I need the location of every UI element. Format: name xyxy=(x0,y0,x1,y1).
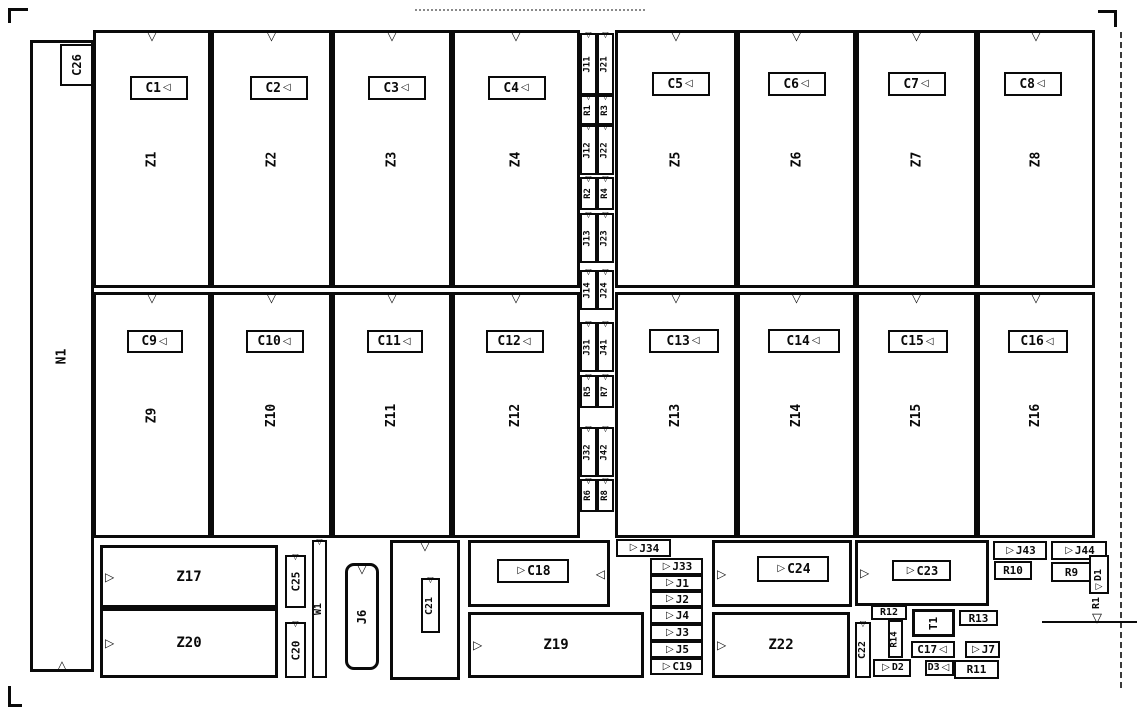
resistor-r14: R14 xyxy=(888,620,903,658)
edge-marker: ▽ xyxy=(1088,612,1106,626)
connector-j6: J6▽ xyxy=(345,563,379,670)
capacitor-c26: C26 xyxy=(60,44,93,86)
arrow-right-icon: ▷ xyxy=(517,566,525,576)
ic-z6-label: Z6 xyxy=(790,151,803,167)
arrow-left-icon: ◁ xyxy=(1037,79,1045,89)
jumper-j4-label: J4 xyxy=(676,610,689,621)
resistor-r3: R3▽ xyxy=(597,95,614,125)
pin1-notch-icon: ▽ xyxy=(511,292,520,304)
ic-z2-label: Z2 xyxy=(265,151,278,167)
jumper-j32: J32▽ xyxy=(580,427,597,477)
capacitor-c11-label: C11 xyxy=(377,335,400,348)
arrow-left-icon: ◁ xyxy=(921,79,929,89)
resistor-r9: R9 xyxy=(1051,562,1092,582)
jumper-j11-label: J11 xyxy=(584,56,593,72)
capacitor-c13-label: C13 xyxy=(666,335,689,348)
arrow-left-icon: ◁ xyxy=(523,337,531,347)
pin1-notch-icon: ▽ xyxy=(602,373,608,381)
resistor-r11: R11 xyxy=(954,660,999,679)
capacitor-c9-label: C9 xyxy=(141,335,157,348)
arrow-left-icon: ◁ xyxy=(939,645,947,655)
jumper-j31: J31▽ xyxy=(580,322,597,372)
arrow-left-icon: ◁ xyxy=(283,337,291,347)
resistor-r2: R2▽ xyxy=(580,177,597,210)
arrow-right-icon: ▷ xyxy=(663,662,671,672)
jumper-j4: ▷J4 xyxy=(650,607,703,624)
ic-z3: Z3▽ xyxy=(332,30,452,288)
capacitor-c4: C4◁ xyxy=(488,76,546,100)
capacitor-c26-label: C26 xyxy=(71,54,83,76)
ic-z6: Z6▽ xyxy=(737,30,856,288)
ic-z11-label: Z11 xyxy=(385,403,398,426)
pcb-assembly-diagram: N1△C26Z1▽Z2▽Z3▽Z4▽Z5▽Z6▽Z7▽Z8▽C1◁C2◁C3◁C… xyxy=(0,0,1137,720)
ic-z19: Z19▷ xyxy=(468,612,644,678)
capacitor-c10: C10◁ xyxy=(246,330,304,353)
resistor-r5-label: R5 xyxy=(584,386,593,397)
resistor-r4: R4▽ xyxy=(597,177,614,210)
jumper-j22-label: J22 xyxy=(601,142,610,158)
component-t1: T1 xyxy=(912,609,955,637)
jumper-j1: ▷J1 xyxy=(650,575,703,591)
jumper-j41: J41▽ xyxy=(597,322,614,372)
arrow-right-icon: ▷ xyxy=(907,566,915,576)
resistor-r11-label: R11 xyxy=(967,664,987,675)
component-n1: N1△ xyxy=(30,40,94,672)
capacitor-c8-label: C8 xyxy=(1019,78,1035,91)
capacitor-c25-label: C25 xyxy=(290,572,301,592)
resistor-r12: R12 xyxy=(871,605,907,620)
arrow-right-icon: ▷ xyxy=(666,628,674,638)
capacitor-c8: C8◁ xyxy=(1004,72,1062,96)
capacitor-c6: C6◁ xyxy=(768,72,826,96)
capacitor-c24-label: C24 xyxy=(787,563,810,576)
jumper-j2: ▷J2 xyxy=(650,591,703,607)
ic-z11: Z11▽ xyxy=(332,292,452,538)
capacitor-c19-label: C19 xyxy=(672,661,692,672)
jumper-j24-label: J24 xyxy=(601,282,610,298)
pin1-notch-icon: ▽ xyxy=(292,553,298,561)
jumper-j32-label: J32 xyxy=(584,444,593,460)
capacitor-c14: C14◁ xyxy=(768,329,840,353)
resistor-r9-label: R9 xyxy=(1065,567,1078,578)
arrow-left-icon: ◁ xyxy=(596,568,605,580)
jumper-j12-label: J12 xyxy=(584,142,593,158)
ic-z16-label: Z16 xyxy=(1029,403,1042,426)
pin1-notch-icon: ▽ xyxy=(912,30,921,42)
pin1-notch-icon: ▽ xyxy=(792,292,801,304)
resistor-r10-label: R10 xyxy=(1003,565,1023,576)
pin1-notch-icon: ▽ xyxy=(267,292,276,304)
capacitor-c20-label: C20 xyxy=(290,640,301,660)
arrow-right-icon: ▷ xyxy=(717,639,726,651)
pin1-notch-icon: ▽ xyxy=(602,477,608,485)
arrow-right-icon: ▷ xyxy=(666,594,674,604)
capacitor-c11: C11◁ xyxy=(367,330,423,353)
board-corner-mark-top-left xyxy=(8,8,28,23)
connector-j6-label: J6 xyxy=(356,609,368,623)
arrow-right-icon: ▷ xyxy=(666,578,674,588)
ic-z1: Z1▽ xyxy=(93,30,211,288)
capacitor-c13: C13◁ xyxy=(649,329,719,353)
ic-z8-label: Z8 xyxy=(1030,151,1043,167)
arrow-right-icon: ▷ xyxy=(1006,546,1014,556)
resistor-r13: R13 xyxy=(959,610,998,626)
capacitor-c18: ▷C18 xyxy=(497,559,569,583)
resistor-r8: R8▽ xyxy=(597,479,614,512)
arrow-right-icon: ▷ xyxy=(473,639,482,651)
pin1-notch-icon: ▽ xyxy=(602,31,608,39)
ic-z20: Z20▷ xyxy=(100,608,278,678)
ic-z12: Z12▽ xyxy=(452,292,580,538)
diode-d3: D3◁ xyxy=(925,660,954,676)
capacitor-c7: C7◁ xyxy=(888,72,946,96)
ic-z4: Z4▽ xyxy=(452,30,580,288)
pin1-notch-icon: ▽ xyxy=(420,540,429,552)
pin1-notch-icon: ▽ xyxy=(585,373,591,381)
jumper-j43-label: J43 xyxy=(1016,545,1036,556)
pin1-notch-icon: ▽ xyxy=(671,292,680,304)
capacitor-c16: C16◁ xyxy=(1008,330,1068,353)
pin1-notch-icon: ▽ xyxy=(585,175,591,183)
ic-z4-label: Z4 xyxy=(510,151,523,167)
arrow-right-icon: ▷ xyxy=(105,637,114,649)
jumper-j23: J23▽ xyxy=(597,213,614,263)
resistor-r13-label: R13 xyxy=(969,613,989,624)
jumper-j2-label: J2 xyxy=(676,594,689,605)
jumper-j14-label: J14 xyxy=(584,282,593,298)
jumper-j34: ▷J34 xyxy=(616,539,671,557)
arrow-left-icon: ◁ xyxy=(692,336,700,346)
resistor-r1: R1▽ xyxy=(580,95,597,125)
jumper-j13-label: J13 xyxy=(584,230,593,246)
jumper-j1-label: J1 xyxy=(676,578,689,589)
ic-z17-label: Z17 xyxy=(176,570,201,584)
capacitor-c1: C1◁ xyxy=(130,76,188,100)
arrow-right-icon: ▷ xyxy=(666,611,674,621)
ic-z14-label: Z14 xyxy=(790,403,803,426)
capacitor-c5: C5◁ xyxy=(652,72,710,96)
capacitor-c3: C3◁ xyxy=(368,76,426,100)
resistor-r4-label: R4 xyxy=(601,188,610,199)
jumper-j14: J14▽ xyxy=(580,270,597,310)
resistor-r6: R6▽ xyxy=(580,479,597,512)
pin1-notch-icon: ▽ xyxy=(860,620,866,628)
pin1-notch-icon: ▽ xyxy=(585,268,591,276)
pin1-notch-icon: ▽ xyxy=(357,563,366,575)
arrow-right-icon: ▷ xyxy=(777,564,785,574)
pin1-notch-icon: ▽ xyxy=(602,123,608,131)
arrow-left-icon: ◁ xyxy=(685,79,693,89)
board-edge-dashed-line xyxy=(1120,32,1122,688)
pin1-notch-icon: ▽ xyxy=(602,211,608,219)
ic-z15: Z15▽ xyxy=(856,292,977,538)
arrow-right-icon: ▷ xyxy=(882,663,890,673)
ic-z3-label: Z3 xyxy=(386,151,399,167)
arrow-left-icon: ◁ xyxy=(942,663,950,673)
capacitor-c12-label: C12 xyxy=(497,335,520,348)
jumper-j13: J13▽ xyxy=(580,213,597,263)
capacitor-c6-label: C6 xyxy=(783,78,799,91)
resistor-r7: R7▽ xyxy=(597,375,614,408)
arrow-right-icon: ▷ xyxy=(860,567,869,579)
arrow-left-icon: ◁ xyxy=(801,79,809,89)
capacitor-c4-label: C4 xyxy=(503,82,519,95)
capacitor-c2: C2◁ xyxy=(250,76,308,100)
jumper-j3: ▷J3 xyxy=(650,624,703,641)
pin1-notch-icon: ▽ xyxy=(292,620,298,628)
capacitor-c18-label: C18 xyxy=(527,565,550,578)
ic-z10: Z10▽ xyxy=(211,292,332,538)
resistor-r10: R10 xyxy=(994,561,1032,580)
jumper-j33-label: J33 xyxy=(672,561,692,572)
capacitor-c21-label: C21 xyxy=(426,596,436,614)
arrow-right-icon: ▷ xyxy=(105,571,114,583)
resistor-r1-label: R1 xyxy=(584,105,593,116)
pin1-notch-icon: ▽ xyxy=(912,292,921,304)
capacitor-c15-label: C15 xyxy=(900,335,923,348)
resistor-r3-label: R3 xyxy=(601,105,610,116)
pin1-notch-icon: ▽ xyxy=(671,30,680,42)
pin1-notch-icon: ▽ xyxy=(511,30,520,42)
pin1-notch-icon: ▽ xyxy=(585,93,591,101)
pin1-notch-icon: ▽ xyxy=(585,211,591,219)
capacitor-c14-label: C14 xyxy=(786,335,809,348)
pin-up-icon: △ xyxy=(57,659,66,671)
jumper-j34-label: J34 xyxy=(639,543,659,554)
arrow-left-icon: ◁ xyxy=(812,336,820,346)
resistor-r6-label: R6 xyxy=(584,490,593,501)
jumper-j42: J42▽ xyxy=(597,427,614,477)
arrow-right-icon: ▷ xyxy=(666,645,674,655)
pin1-notch-icon: ▽ xyxy=(316,538,322,546)
ic-z12-label: Z12 xyxy=(509,403,522,426)
arrow-left-icon: ◁ xyxy=(283,83,291,93)
jumper-w1-label: W1 xyxy=(315,603,325,615)
capacitor-c5-label: C5 xyxy=(667,78,683,91)
capacitor-c21: C21▽ xyxy=(421,578,440,633)
diode-d1-label: D1 xyxy=(1094,568,1104,580)
capacitor-c17: C17◁ xyxy=(911,641,955,658)
component-r1-edge-marker-label: R1 xyxy=(1092,597,1102,609)
ic-z22: Z22▷ xyxy=(712,612,850,678)
capacitor-c20: C20▽ xyxy=(285,622,306,678)
pin1-notch-icon: ▽ xyxy=(1031,292,1040,304)
pin1-notch-icon: ▽ xyxy=(387,30,396,42)
jumper-j41-label: J41 xyxy=(601,339,610,355)
pin1-notch-icon: ▽ xyxy=(147,30,156,42)
pin1-notch-icon: ▽ xyxy=(1092,612,1102,625)
ic-z20-label: Z20 xyxy=(176,636,201,650)
ic-z19-label: Z19 xyxy=(543,638,568,652)
ic-z9: Z9▽ xyxy=(93,292,211,538)
pin1-notch-icon: ▽ xyxy=(585,425,591,433)
capacitor-c9: C9◁ xyxy=(127,330,183,353)
pin1-notch-icon: ▽ xyxy=(792,30,801,42)
jumper-j21-label: J21 xyxy=(601,56,610,72)
ic-z10-label: Z10 xyxy=(265,403,278,426)
diode-d1: D1▷ xyxy=(1089,555,1109,594)
jumper-j31-label: J31 xyxy=(584,339,593,355)
pin1-notch-icon: ▽ xyxy=(602,425,608,433)
arrow-left-icon: ◁ xyxy=(401,83,409,93)
ic-z7-label: Z7 xyxy=(910,151,923,167)
ic-z9-label: Z9 xyxy=(146,407,159,423)
jumper-j43: ▷J43 xyxy=(993,541,1047,560)
ic-z17: Z17▷ xyxy=(100,545,278,608)
pin1-notch-icon: ▽ xyxy=(1031,30,1040,42)
capacitor-c23: ▷C23 xyxy=(892,560,951,581)
jumper-j3-label: J3 xyxy=(676,627,689,638)
ic-z15-label: Z15 xyxy=(910,403,923,426)
component-n1-label: N1 xyxy=(56,348,69,364)
arrow-right-icon: ▷ xyxy=(630,543,638,553)
capacitor-c19: ▷C19 xyxy=(650,658,703,675)
jumper-j7-label: J7 xyxy=(982,644,995,655)
capacitor-c10-label: C10 xyxy=(257,335,280,348)
diode-d2: ▷D2 xyxy=(873,659,911,677)
jumper-j5-label: J5 xyxy=(676,644,689,655)
diode-d2-label: D2 xyxy=(892,663,904,673)
arrow-right-icon: ▷ xyxy=(717,568,726,580)
capacitor-c12: C12◁ xyxy=(486,330,544,353)
pin1-notch-icon: ▽ xyxy=(602,175,608,183)
component-t1-label: T1 xyxy=(928,616,939,629)
board-corner-mark-top-right xyxy=(1098,10,1117,27)
capacitor-c2-label: C2 xyxy=(265,82,281,95)
arrow-left-icon: ◁ xyxy=(163,83,171,93)
ic-z13-label: Z13 xyxy=(669,403,682,426)
pin1-notch-icon: ▽ xyxy=(147,292,156,304)
ic-z7: Z7▽ xyxy=(856,30,977,288)
scan-dotted-line xyxy=(415,9,645,11)
pin1-notch-icon: ▽ xyxy=(602,93,608,101)
resistor-r14-label: R14 xyxy=(891,631,900,647)
resistor-r8-label: R8 xyxy=(601,490,610,501)
capacitor-c16-label: C16 xyxy=(1020,335,1043,348)
resistor-r12-label: R12 xyxy=(880,608,898,618)
resistor-r2-label: R2 xyxy=(584,188,593,199)
jumper-j7: ▷J7 xyxy=(965,641,1000,658)
ic-z8: Z8▽ xyxy=(977,30,1095,288)
capacitor-c15: C15◁ xyxy=(888,330,948,353)
arrow-right-icon: ▷ xyxy=(1065,546,1073,556)
capacitor-c1-label: C1 xyxy=(145,82,161,95)
diode-d3-label: D3 xyxy=(928,663,940,673)
capacitor-c22-label: C22 xyxy=(858,641,868,659)
arrow-left-icon: ◁ xyxy=(403,337,411,347)
ic-z22-label: Z22 xyxy=(768,638,793,652)
ic-z5-label: Z5 xyxy=(670,151,683,167)
arrow-left-icon: ◁ xyxy=(926,337,934,347)
capacitor-c7-label: C7 xyxy=(903,78,919,91)
pin1-notch-icon: ▽ xyxy=(602,320,608,328)
resistor-r5: R5▽ xyxy=(580,375,597,408)
capacitor-c24: ▷C24 xyxy=(757,556,829,582)
capacitor-c25: C25▽ xyxy=(285,555,306,608)
capacitor-c23-label: C23 xyxy=(917,565,939,577)
pin1-notch-icon: ▽ xyxy=(585,31,591,39)
jumper-j24: J24▽ xyxy=(597,270,614,310)
pin1-notch-icon: ▽ xyxy=(585,320,591,328)
pin1-notch-icon: ▽ xyxy=(585,123,591,131)
arrow-right-icon: ▷ xyxy=(972,645,980,655)
capacitor-c3-label: C3 xyxy=(383,82,399,95)
jumper-j23-label: J23 xyxy=(601,230,610,246)
pin1-notch-icon: ▽ xyxy=(387,292,396,304)
jumper-j5: ▷J5 xyxy=(650,641,703,658)
pin1-notch-icon: ▽ xyxy=(427,576,433,584)
arrow-right-icon: ▷ xyxy=(663,562,671,572)
ic-z5: Z5▽ xyxy=(615,30,737,288)
arrow-left-icon: ◁ xyxy=(521,83,529,93)
ic-z2: Z2▽ xyxy=(211,30,332,288)
pin1-notch-icon: ▽ xyxy=(585,477,591,485)
jumper-w1: W1▽ xyxy=(312,540,327,678)
jumper-j12: J12▽ xyxy=(580,125,597,175)
ic-z16: Z16▽ xyxy=(977,292,1095,538)
board-corner-mark-bottom-left xyxy=(8,686,22,707)
jumper-j33: ▷J33 xyxy=(650,558,703,575)
arrow-left-icon: ◁ xyxy=(159,337,167,347)
jumper-j21: J21▽ xyxy=(597,33,614,95)
ic-z1-label: Z1 xyxy=(146,151,159,167)
capacitor-c17-label: C17 xyxy=(917,644,937,655)
arrow-left-icon: ◁ xyxy=(1046,337,1054,347)
resistor-r7-label: R7 xyxy=(601,386,610,397)
pin1-notch-icon: ▽ xyxy=(267,30,276,42)
jumper-j11: J11▽ xyxy=(580,33,597,95)
jumper-j22: J22▽ xyxy=(597,125,614,175)
pin1-notch-icon: ▽ xyxy=(602,268,608,276)
jumper-j42-label: J42 xyxy=(601,444,610,460)
capacitor-c22: C22▽ xyxy=(855,622,871,678)
